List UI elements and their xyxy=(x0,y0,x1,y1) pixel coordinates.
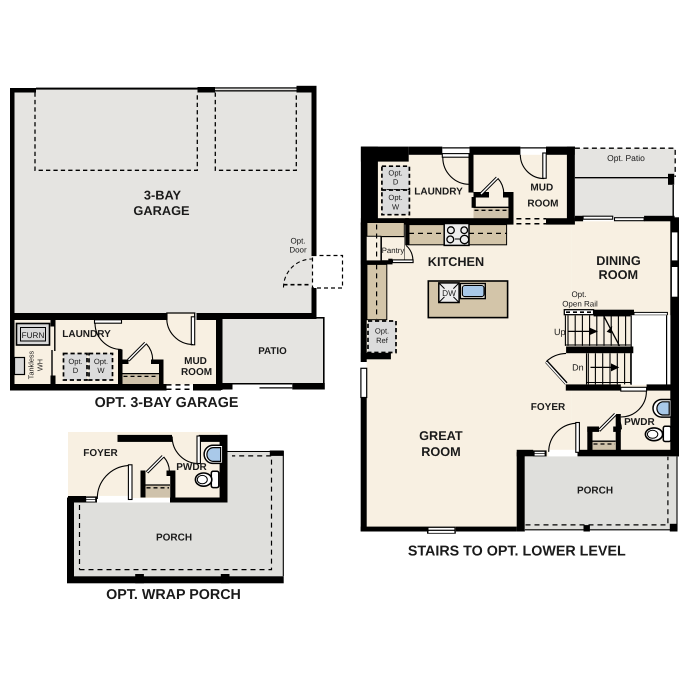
svg-text:Door: Door xyxy=(289,246,307,255)
svg-text:Opt.: Opt. xyxy=(68,357,82,366)
svg-text:FURN: FURN xyxy=(22,331,45,340)
svg-text:PORCH: PORCH xyxy=(156,532,192,543)
svg-text:GREAT: GREAT xyxy=(419,429,463,443)
svg-text:W: W xyxy=(97,366,105,375)
svg-text:OPT. WRAP PORCH: OPT. WRAP PORCH xyxy=(106,587,241,603)
svg-text:3-BAY: 3-BAY xyxy=(144,187,182,202)
svg-text:DINING: DINING xyxy=(596,254,641,268)
svg-text:WH: WH xyxy=(36,359,45,371)
svg-text:PORCH: PORCH xyxy=(577,486,613,497)
svg-text:OPT. 3-BAY GARAGE: OPT. 3-BAY GARAGE xyxy=(95,395,239,411)
svg-text:ROOM: ROOM xyxy=(527,199,558,210)
svg-text:ROOM: ROOM xyxy=(599,268,638,282)
svg-text:ROOM: ROOM xyxy=(421,445,460,459)
svg-text:Opt. Patio: Opt. Patio xyxy=(607,153,645,163)
svg-text:W: W xyxy=(392,202,400,211)
svg-text:LAUNDRY: LAUNDRY xyxy=(414,186,463,197)
svg-text:Opt.: Opt. xyxy=(94,357,108,366)
svg-text:Ref: Ref xyxy=(376,336,389,345)
svg-text:Open Rail: Open Rail xyxy=(562,299,598,308)
svg-text:LAUNDRY: LAUNDRY xyxy=(62,329,111,340)
svg-text:D: D xyxy=(393,178,399,187)
svg-text:Opt.: Opt. xyxy=(375,326,389,335)
svg-text:Pantry: Pantry xyxy=(382,246,405,255)
svg-text:D: D xyxy=(73,366,79,375)
svg-text:PWDR: PWDR xyxy=(624,417,655,428)
svg-text:Opt.: Opt. xyxy=(388,193,402,202)
svg-text:KITCHEN: KITCHEN xyxy=(428,255,484,269)
svg-text:Tankless: Tankless xyxy=(27,350,36,379)
svg-text:PATIO: PATIO xyxy=(258,346,287,357)
svg-text:MUD: MUD xyxy=(184,356,207,367)
svg-text:FOYER: FOYER xyxy=(83,448,118,459)
svg-text:DW: DW xyxy=(442,288,456,298)
svg-text:STAIRS TO OPT. LOWER LEVEL: STAIRS TO OPT. LOWER LEVEL xyxy=(408,544,626,560)
svg-text:ROOM: ROOM xyxy=(181,367,212,378)
svg-text:FOYER: FOYER xyxy=(531,402,566,413)
svg-text:Opt.: Opt. xyxy=(388,168,402,177)
svg-text:Opt.: Opt. xyxy=(290,237,305,246)
svg-text:Dn: Dn xyxy=(572,362,584,372)
svg-text:PWDR: PWDR xyxy=(176,462,207,473)
svg-text:MUD: MUD xyxy=(530,182,553,193)
svg-text:Opt.: Opt. xyxy=(571,290,586,299)
svg-text:GARAGE: GARAGE xyxy=(133,203,190,218)
svg-text:Up: Up xyxy=(554,327,566,337)
